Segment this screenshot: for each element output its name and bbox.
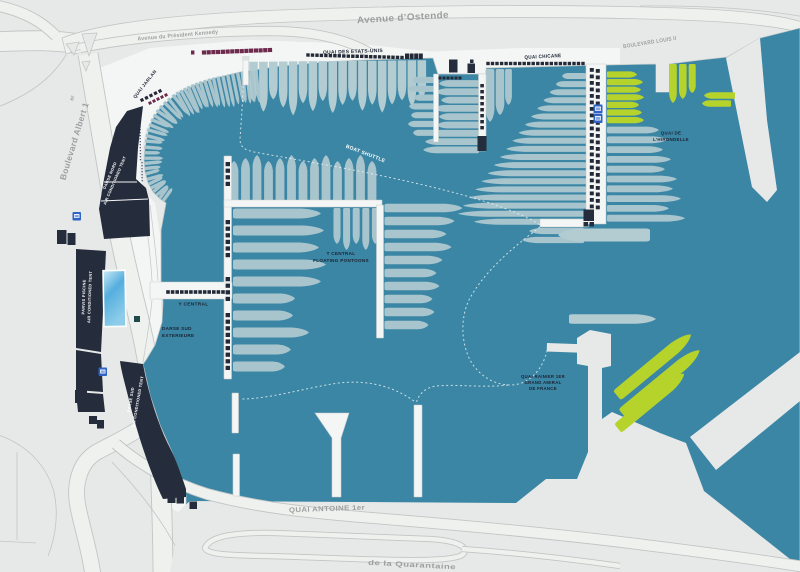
- svg-text:QUAI DE: QUAI DE: [661, 131, 681, 136]
- svg-text:EXTERIEURE: EXTERIEURE: [162, 333, 194, 338]
- svg-text:Y CENTRAL: Y CENTRAL: [178, 302, 208, 308]
- svg-text:DARSE SUD: DARSE SUD: [162, 326, 192, 331]
- svg-text:QUAI RAINIER 1ER: QUAI RAINIER 1ER: [521, 374, 566, 379]
- svg-text:GRAND AMIRAL: GRAND AMIRAL: [524, 380, 561, 385]
- svg-text:T CENTRAL: T CENTRAL: [327, 251, 356, 256]
- svg-text:DE FRANCE: DE FRANCE: [529, 386, 557, 391]
- svg-text:L’HIRONDELLE: L’HIRONDELLE: [653, 137, 689, 142]
- svg-text:FLOATING PONTOONS: FLOATING PONTOONS: [313, 258, 369, 263]
